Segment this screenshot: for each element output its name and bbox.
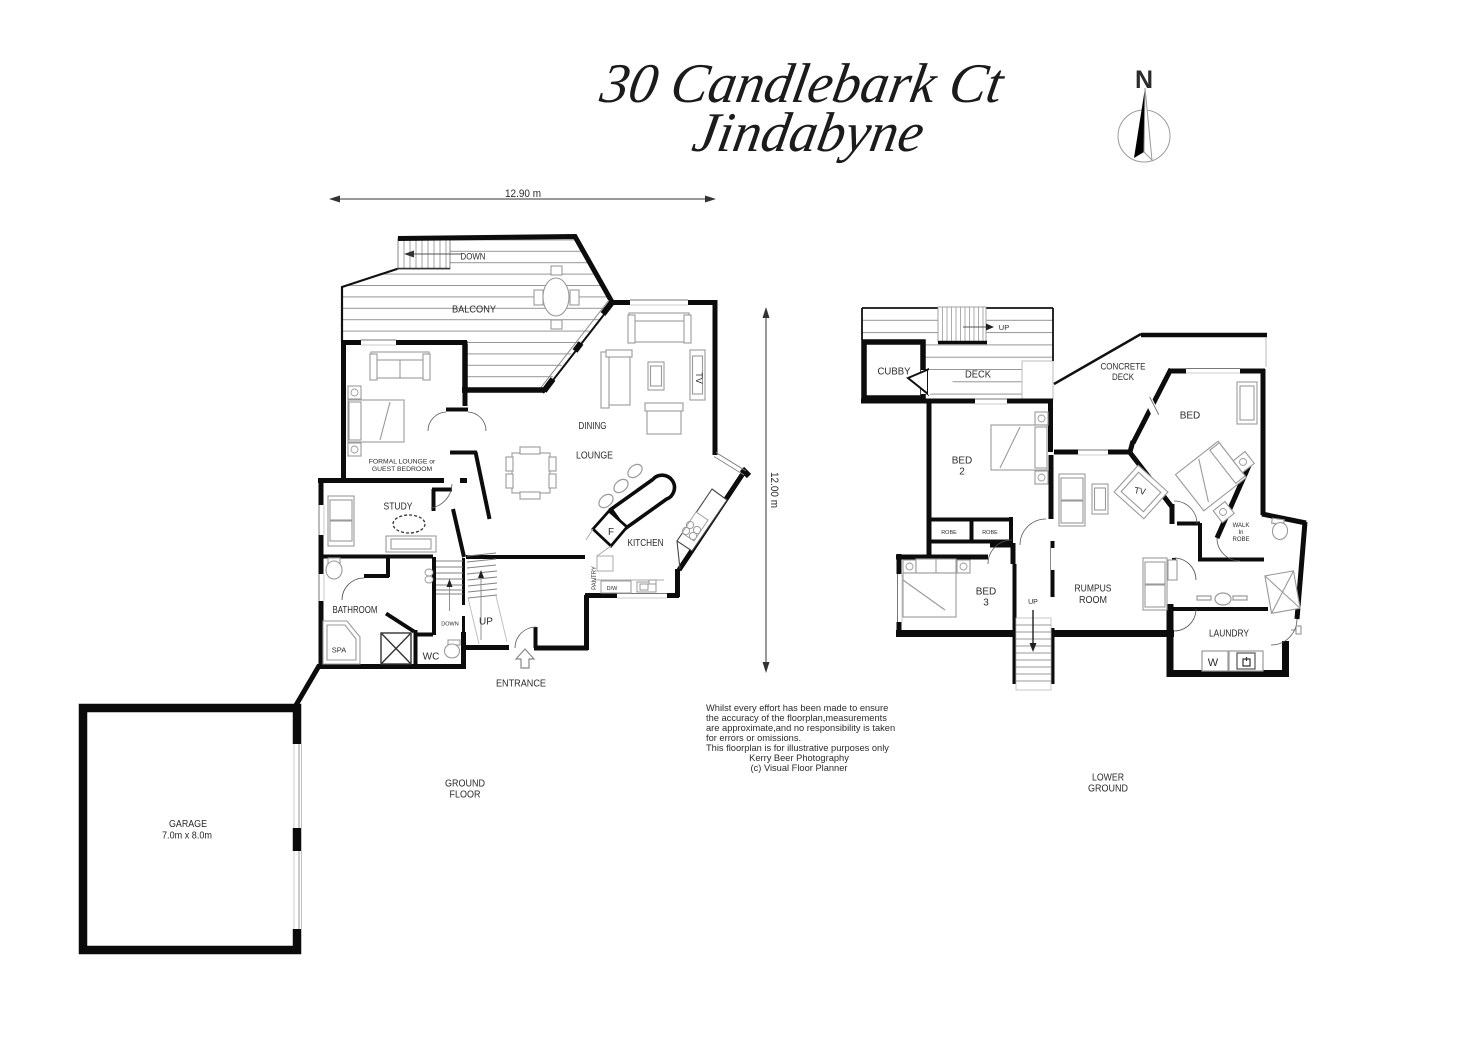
svg-text:W: W <box>1208 657 1219 669</box>
svg-text:WALK: WALK <box>1233 523 1250 529</box>
svg-text:(c) Visual Floor Planner: (c) Visual Floor Planner <box>751 763 848 773</box>
svg-text:D/W: D/W <box>607 586 619 592</box>
svg-text:7.0m x 8.0m: 7.0m x 8.0m <box>162 831 212 842</box>
svg-text:F: F <box>608 527 614 538</box>
svg-text:12.00 m: 12.00 m <box>768 472 780 508</box>
svg-text:DECK: DECK <box>965 370 991 381</box>
svg-text:BALCONY: BALCONY <box>452 304 496 316</box>
svg-text:BED: BED <box>1180 411 1201 422</box>
svg-text:BED: BED <box>976 587 997 598</box>
svg-text:CUBBY: CUBBY <box>878 367 911 378</box>
svg-text:BED: BED <box>952 456 973 467</box>
svg-text:Kerry Beer Photography: Kerry Beer Photography <box>749 753 849 763</box>
svg-text:ROBE: ROBE <box>941 530 957 536</box>
svg-text:PANTRY: PANTRY <box>592 566 598 590</box>
svg-text:BATHROOM: BATHROOM <box>333 605 378 616</box>
svg-text:GUEST BEDROOM: GUEST BEDROOM <box>372 466 433 473</box>
svg-text:This floorplan is for illustra: This floorplan is for illustrative purpo… <box>706 743 889 753</box>
svg-text:WC: WC <box>423 652 440 663</box>
svg-text:LOUNGE: LOUNGE <box>576 451 613 462</box>
svg-text:LOWER: LOWER <box>1092 773 1124 784</box>
svg-text:DOWN: DOWN <box>441 622 458 628</box>
svg-text:DINING: DINING <box>579 421 607 432</box>
svg-text:DECK: DECK <box>1112 372 1135 383</box>
svg-text:RUMPUS: RUMPUS <box>1075 584 1112 595</box>
svg-text:UP: UP <box>999 323 1009 332</box>
svg-text:In: In <box>1238 530 1243 536</box>
svg-text:GROUND: GROUND <box>1088 784 1128 795</box>
svg-text:Jindabyne: Jindabyne <box>688 102 929 164</box>
svg-text:CONCRETE: CONCRETE <box>1101 362 1146 373</box>
svg-text:GARAGE: GARAGE <box>169 819 207 830</box>
svg-text:DOWN: DOWN <box>461 252 486 262</box>
svg-text:KITCHEN: KITCHEN <box>628 538 664 549</box>
svg-text:FLOOR: FLOOR <box>450 790 481 801</box>
svg-text:the accuracy of the floorplan,: the accuracy of the floorplan,measuremen… <box>706 713 887 723</box>
svg-text:LAUNDRY: LAUNDRY <box>1209 629 1249 640</box>
svg-text:STUDY: STUDY <box>384 502 413 513</box>
svg-text:3: 3 <box>983 598 989 609</box>
svg-text:FORMAL LOUNGE or: FORMAL LOUNGE or <box>369 459 436 466</box>
svg-text:2: 2 <box>959 467 965 478</box>
svg-text:12.90 m: 12.90 m <box>505 188 541 200</box>
svg-text:ENTRANCE: ENTRANCE <box>496 679 546 690</box>
svg-text:ROBE: ROBE <box>982 530 998 536</box>
svg-text:UP: UP <box>1028 599 1038 606</box>
svg-text:are approximate,and no respons: are approximate,and no responsibility is… <box>706 723 895 733</box>
svg-text:TV: TV <box>1133 485 1146 497</box>
svg-text:UP: UP <box>479 617 493 628</box>
svg-text:TV: TV <box>694 372 704 384</box>
svg-text:GROUND: GROUND <box>445 779 485 790</box>
svg-text:ROOM: ROOM <box>1079 595 1107 606</box>
svg-text:N: N <box>1135 66 1153 94</box>
svg-text:ROBE: ROBE <box>1232 537 1249 543</box>
svg-text:Whilst every effort has been m: Whilst every effort has been made to ens… <box>706 703 888 713</box>
svg-text:SPA: SPA <box>332 646 346 655</box>
svg-text:for errors or omissions.: for errors or omissions. <box>706 733 801 743</box>
